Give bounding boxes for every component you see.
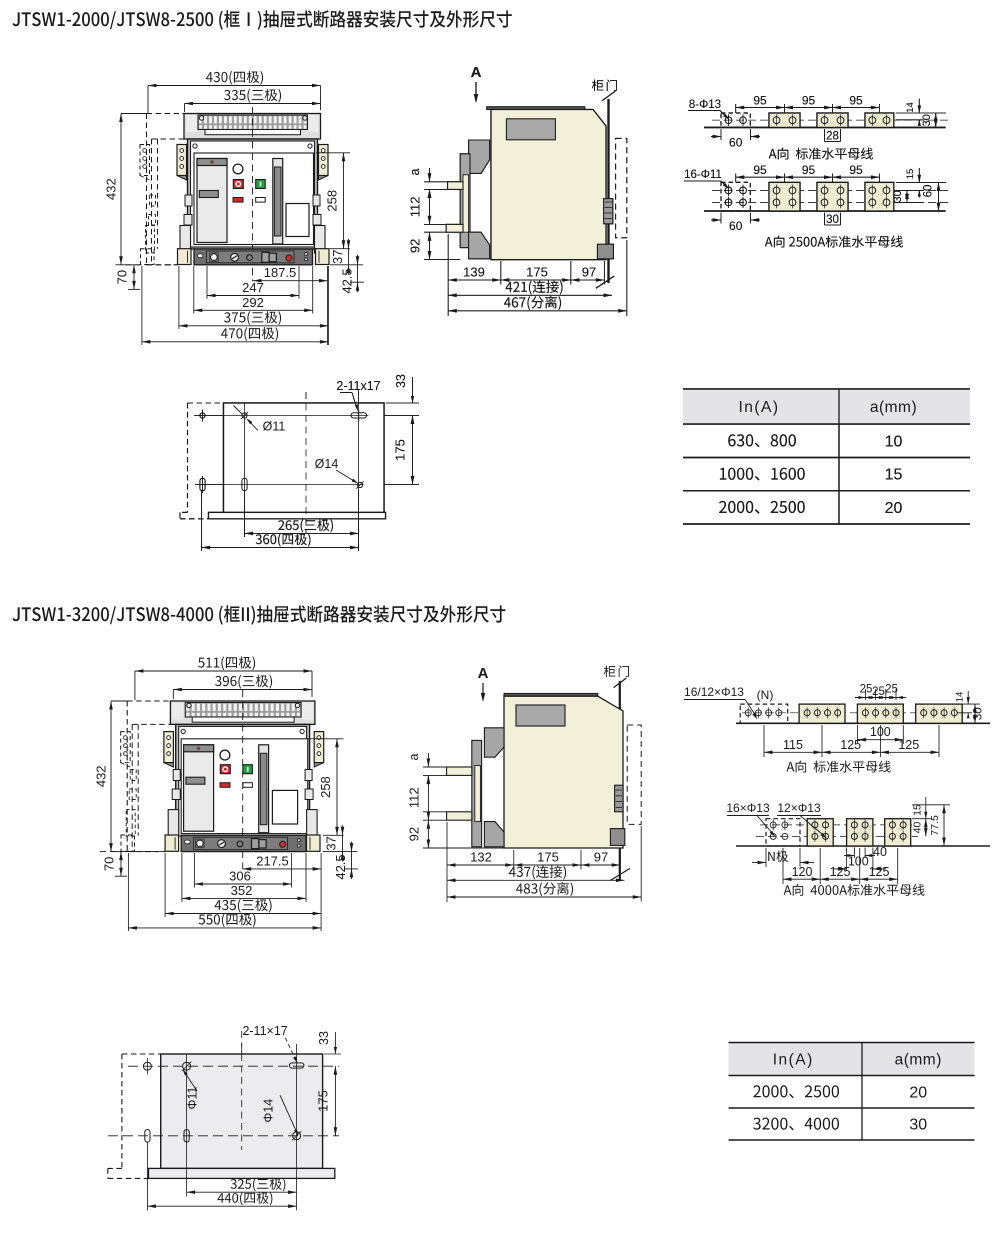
svg-text:a(mm): a(mm) xyxy=(895,1052,942,1069)
svg-text:30: 30 xyxy=(909,1117,927,1134)
svg-text:70: 70 xyxy=(102,857,117,871)
svg-text:28: 28 xyxy=(826,131,839,143)
svg-text:258: 258 xyxy=(318,776,333,798)
svg-text:352: 352 xyxy=(231,883,253,898)
svg-text:Φ11: Φ11 xyxy=(186,1086,200,1109)
svg-text:37: 37 xyxy=(330,250,345,264)
svg-text:25: 25 xyxy=(872,686,885,698)
svg-text:(N): (N) xyxy=(757,688,774,702)
svg-text:247: 247 xyxy=(242,280,264,295)
svg-text:95: 95 xyxy=(753,163,767,177)
svg-text:97: 97 xyxy=(582,264,596,279)
svg-text:125: 125 xyxy=(830,865,851,879)
svg-text:2-11x17: 2-11x17 xyxy=(336,379,380,393)
svg-text:175: 175 xyxy=(537,849,559,864)
svg-text:60: 60 xyxy=(729,136,743,150)
svg-text:10: 10 xyxy=(885,433,903,450)
svg-text:77.5: 77.5 xyxy=(929,815,941,836)
svg-text:92: 92 xyxy=(408,239,423,253)
svg-text:125: 125 xyxy=(869,865,890,879)
svg-text:258: 258 xyxy=(325,190,340,212)
svg-text:33: 33 xyxy=(394,374,408,388)
svg-text:432: 432 xyxy=(104,178,119,200)
svg-text:120: 120 xyxy=(792,865,813,879)
svg-text:25: 25 xyxy=(885,683,898,695)
svg-text:95: 95 xyxy=(849,93,863,107)
svg-text:60: 60 xyxy=(923,185,935,198)
svg-text:In(A): In(A) xyxy=(738,399,779,416)
svg-text:30: 30 xyxy=(973,707,985,720)
svg-text:217.5: 217.5 xyxy=(256,853,289,868)
svg-text:60: 60 xyxy=(729,219,743,233)
svg-text:8-Φ13: 8-Φ13 xyxy=(689,99,721,111)
svg-text:15: 15 xyxy=(885,467,903,484)
svg-text:115: 115 xyxy=(783,738,803,752)
svg-text:2-11×17: 2-11×17 xyxy=(242,1024,287,1038)
svg-text:20: 20 xyxy=(885,500,903,517)
svg-text:95: 95 xyxy=(802,163,816,177)
svg-text:37: 37 xyxy=(324,836,339,850)
svg-text:125: 125 xyxy=(840,738,861,752)
svg-text:95: 95 xyxy=(802,93,816,107)
svg-text:30: 30 xyxy=(921,114,933,126)
svg-text:In(A): In(A) xyxy=(773,1052,814,1069)
svg-text:15: 15 xyxy=(912,804,924,816)
svg-text:Ø14: Ø14 xyxy=(315,457,339,471)
svg-text:A: A xyxy=(478,665,489,682)
svg-text:15: 15 xyxy=(905,169,916,180)
svg-text:42.5: 42.5 xyxy=(333,854,348,879)
svg-text:70: 70 xyxy=(115,270,130,284)
svg-text:25: 25 xyxy=(860,683,873,695)
svg-text:Φ14: Φ14 xyxy=(262,1099,276,1123)
svg-text:132: 132 xyxy=(470,849,492,864)
svg-text:139: 139 xyxy=(463,264,485,279)
svg-text:33: 33 xyxy=(317,1031,331,1045)
svg-text:42.5: 42.5 xyxy=(340,268,355,293)
svg-text:A: A xyxy=(471,64,482,81)
svg-text:40: 40 xyxy=(912,822,924,834)
svg-text:175: 175 xyxy=(315,1090,330,1112)
svg-text:30: 30 xyxy=(826,214,839,226)
svg-text:125: 125 xyxy=(898,738,919,752)
svg-text:16/12×Φ13: 16/12×Φ13 xyxy=(684,685,744,699)
svg-text:14: 14 xyxy=(955,692,966,703)
svg-text:112: 112 xyxy=(408,197,423,218)
svg-text:30: 30 xyxy=(892,190,904,202)
svg-text:a: a xyxy=(407,753,421,760)
svg-text:292: 292 xyxy=(242,295,264,310)
svg-text:12×Φ13: 12×Φ13 xyxy=(777,801,821,815)
svg-text:95: 95 xyxy=(849,163,863,177)
svg-text:16-Φ11: 16-Φ11 xyxy=(684,169,722,181)
svg-text:20: 20 xyxy=(909,1084,927,1101)
svg-text:14: 14 xyxy=(905,102,916,113)
svg-text:95: 95 xyxy=(753,93,767,107)
svg-text:112: 112 xyxy=(407,787,422,808)
svg-text:92: 92 xyxy=(407,827,422,841)
svg-text:97: 97 xyxy=(594,849,608,864)
svg-text:40: 40 xyxy=(873,845,887,859)
svg-text:Ø11: Ø11 xyxy=(263,420,286,434)
svg-text:100: 100 xyxy=(848,854,869,868)
svg-text:432: 432 xyxy=(94,765,109,787)
svg-text:a: a xyxy=(408,168,422,175)
svg-text:187.5: 187.5 xyxy=(264,265,297,280)
svg-text:16×Φ13: 16×Φ13 xyxy=(726,801,770,815)
svg-text:a(mm): a(mm) xyxy=(870,399,917,416)
svg-text:175: 175 xyxy=(526,264,548,279)
svg-text:175: 175 xyxy=(393,439,408,461)
svg-text:306: 306 xyxy=(229,869,251,884)
